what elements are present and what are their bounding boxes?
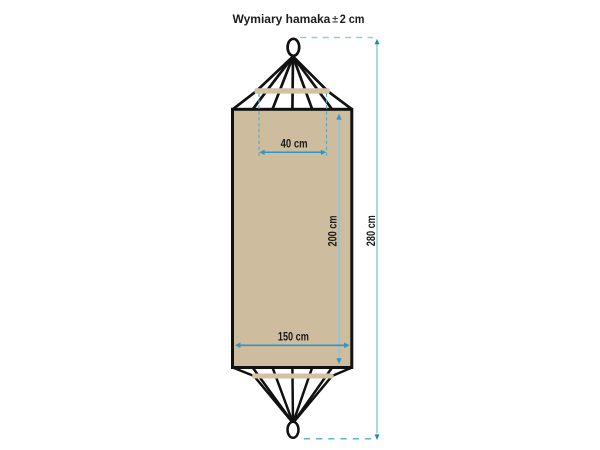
svg-text:Wymiary hamaka: Wymiary hamaka	[233, 12, 331, 26]
svg-text:2 cm: 2 cm	[340, 12, 365, 26]
svg-text:40 cm: 40 cm	[281, 138, 308, 150]
svg-text:200 cm: 200 cm	[326, 216, 340, 247]
svg-text:150 cm: 150 cm	[278, 329, 309, 343]
svg-text:280 cm: 280 cm	[364, 215, 378, 246]
svg-text:±: ±	[332, 14, 338, 26]
